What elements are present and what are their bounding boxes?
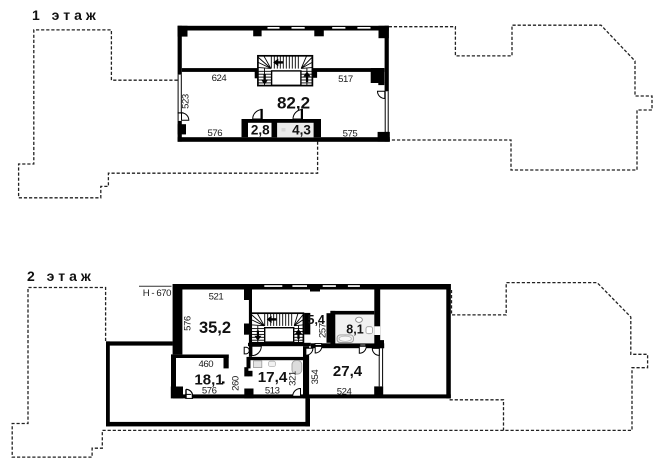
- svg-text:1 этаж: 1 этаж: [32, 7, 100, 23]
- svg-text:257: 257: [318, 323, 329, 338]
- svg-text:521: 521: [209, 292, 224, 303]
- svg-text:523: 523: [181, 94, 192, 109]
- svg-text:624: 624: [212, 73, 228, 84]
- svg-text:517: 517: [338, 74, 353, 85]
- svg-text:513: 513: [265, 385, 280, 396]
- svg-text:524: 524: [337, 386, 353, 397]
- svg-text:35,2: 35,2: [199, 319, 231, 337]
- svg-text:2,8: 2,8: [251, 123, 270, 138]
- svg-text:321: 321: [288, 371, 299, 386]
- svg-text:576: 576: [202, 386, 217, 397]
- svg-text:8,1: 8,1: [346, 323, 363, 337]
- svg-text:27,4: 27,4: [333, 363, 363, 380]
- svg-text:575: 575: [343, 129, 358, 140]
- svg-text:82,2: 82,2: [277, 94, 310, 113]
- svg-text:4,3: 4,3: [292, 123, 311, 138]
- svg-text:17,4: 17,4: [258, 369, 288, 386]
- svg-text:Н - 670: Н - 670: [143, 288, 171, 299]
- svg-text:2 этаж: 2 этаж: [27, 268, 95, 284]
- svg-text:576: 576: [207, 128, 222, 139]
- svg-text:460: 460: [198, 359, 213, 370]
- svg-text:260: 260: [231, 376, 242, 391]
- svg-text:576: 576: [183, 316, 194, 331]
- svg-text:354: 354: [310, 369, 321, 385]
